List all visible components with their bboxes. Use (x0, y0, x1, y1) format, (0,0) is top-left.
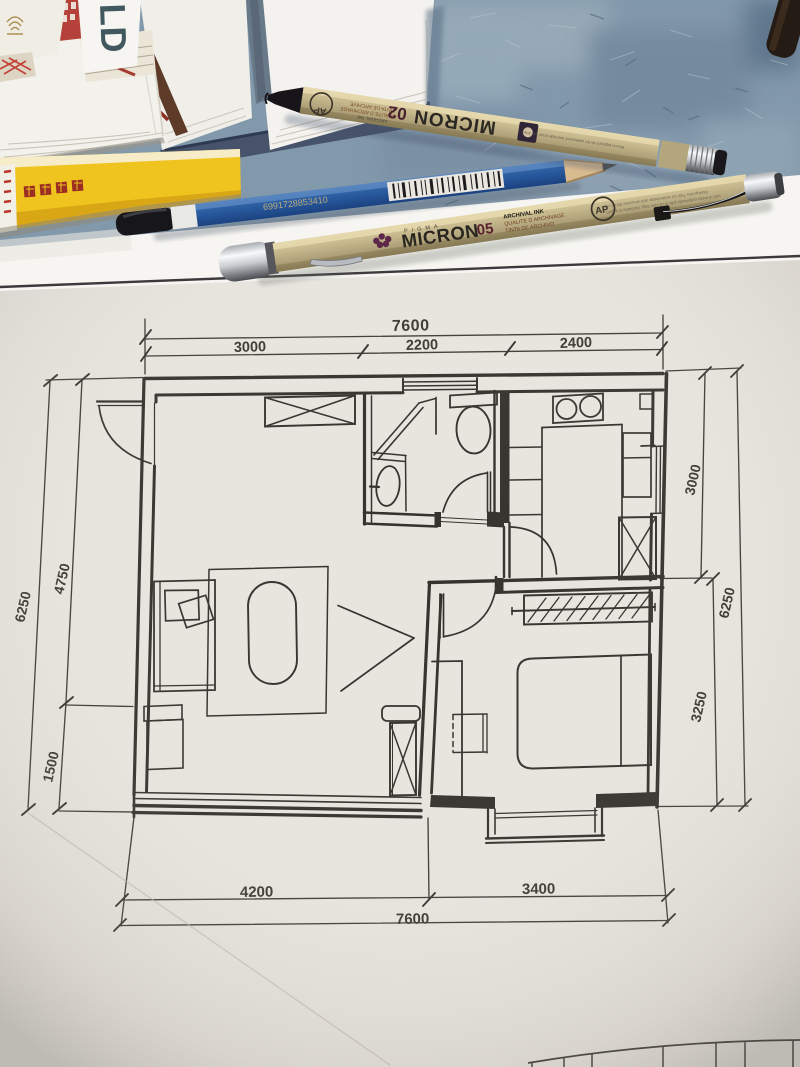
svg-text:05: 05 (476, 220, 495, 239)
svg-text:AP: AP (313, 105, 327, 117)
svg-text:LD: LD (92, 3, 135, 54)
svg-text:02: 02 (387, 102, 409, 124)
